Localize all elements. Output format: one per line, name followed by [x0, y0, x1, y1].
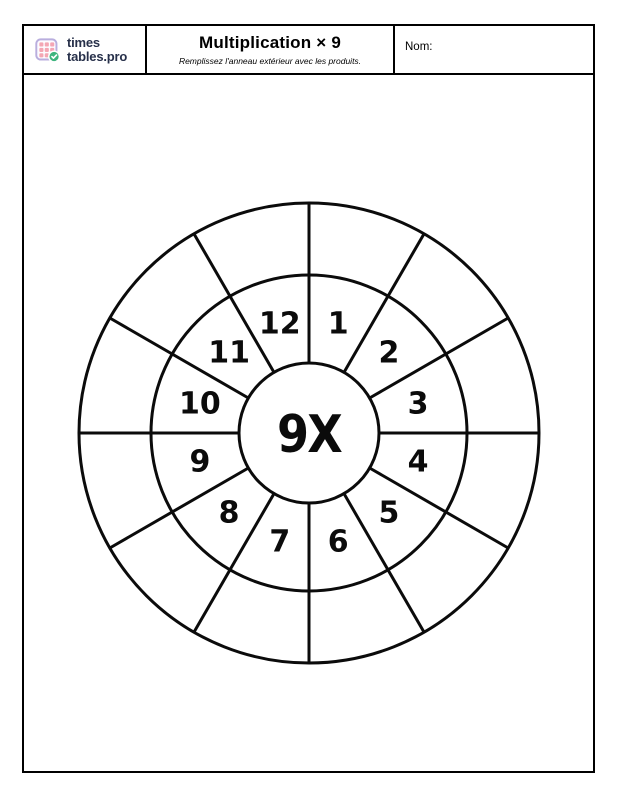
inner-ring-number: 4 [408, 445, 429, 480]
wheel-center-label: 9X [277, 405, 343, 465]
inner-ring-number: 7 [269, 525, 290, 560]
brand-name-line2: tables.pro [67, 50, 127, 64]
name-field-cell: Nom: [395, 26, 593, 73]
inner-ring-number: 11 [208, 336, 250, 371]
inner-ring-number: 1 [328, 306, 349, 341]
multiplication-wheel: 1234567891011129X [24, 75, 593, 771]
title-block: Multiplication × 9 Remplissez l'anneau e… [147, 26, 395, 73]
inner-ring-number: 10 [179, 386, 221, 421]
brand-name: times tables.pro [67, 36, 127, 63]
timestables-grid-check-icon [35, 37, 61, 63]
inner-ring-number: 5 [378, 495, 399, 530]
brand-logo: times tables.pro [24, 26, 147, 73]
header: times tables.pro Multiplication × 9 Remp… [24, 26, 593, 75]
brand-name-line1: times [67, 36, 127, 50]
inner-ring-number: 12 [259, 306, 301, 341]
inner-ring-number: 2 [378, 336, 399, 371]
page-title: Multiplication × 9 [199, 33, 341, 53]
inner-ring-number: 3 [408, 386, 429, 421]
inner-ring-number: 8 [219, 495, 240, 530]
inner-ring-number: 9 [189, 445, 210, 480]
inner-ring-number: 6 [328, 525, 349, 560]
worksheet-page: times tables.pro Multiplication × 9 Remp… [22, 24, 595, 773]
name-label: Nom: [405, 41, 432, 53]
page-instructions: Remplissez l'anneau extérieur avec les p… [179, 56, 361, 66]
worksheet-body: 1234567891011129X [24, 75, 593, 771]
